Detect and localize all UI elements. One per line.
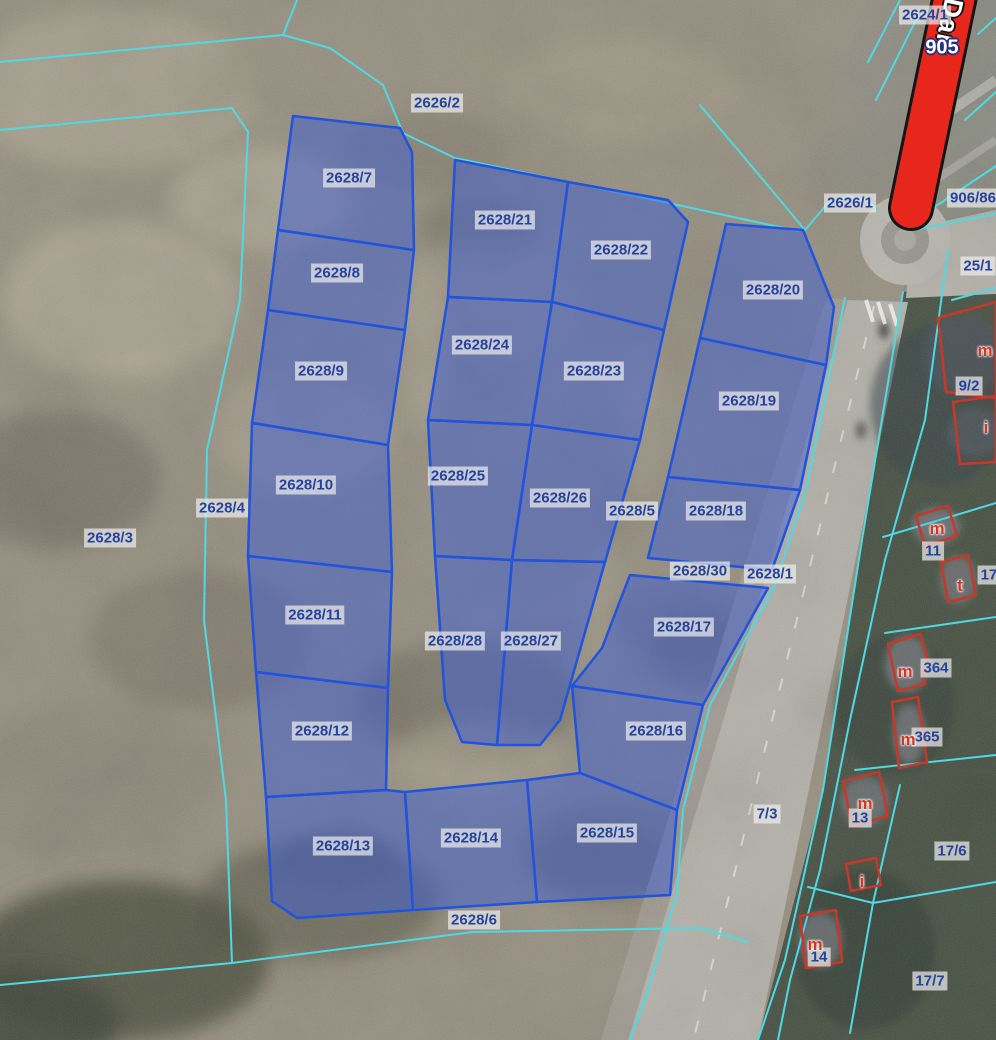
parcel-label-2628-19: 2628/19 — [719, 392, 779, 411]
parcel-label-2628-24: 2628/24 — [452, 336, 512, 355]
map-viewport: Darł9052628/72628/82628/92628/102628/112… — [0, 0, 996, 1040]
parcel-label-2628-6: 2628/6 — [448, 911, 500, 930]
parcel-label-2628-1: 2628/1 — [744, 565, 796, 584]
parcel-label-2628-23: 2628/23 — [564, 362, 624, 381]
building-use-letter: m — [900, 730, 915, 750]
parcel-label-2628-3: 2628/3 — [84, 529, 136, 548]
parcel-label-2628-14: 2628/14 — [441, 829, 501, 848]
parcel-label-17-6: 17/6 — [934, 842, 969, 861]
parcel-label-2628-17: 2628/17 — [654, 618, 714, 637]
map-labels-layer: Darł9052628/72628/82628/92628/102628/112… — [0, 0, 996, 1040]
building-use-letter: m — [857, 794, 872, 814]
parcel-label-2628-13: 2628/13 — [313, 837, 373, 856]
parcel-label-7-3: 7/3 — [754, 805, 781, 824]
parcel-label-2628-15: 2628/15 — [577, 824, 637, 843]
road-number-label: 905 — [925, 37, 958, 60]
parcel-label-2628-9: 2628/9 — [295, 362, 347, 381]
building-use-letter: m — [807, 935, 822, 955]
parcel-label-25-1: 25/1 — [960, 257, 995, 276]
parcel-label-364: 364 — [920, 659, 951, 678]
parcel-label-2628-26: 2628/26 — [530, 489, 590, 508]
parcel-label-906-86: 906/86 — [947, 189, 996, 208]
parcel-label-2628-8: 2628/8 — [311, 264, 363, 283]
parcel-label-2628-28: 2628/28 — [425, 632, 485, 651]
building-use-letter: m — [977, 341, 992, 361]
parcel-label-17-7: 17/7 — [912, 972, 947, 991]
parcel-label-2628-22: 2628/22 — [591, 241, 651, 260]
parcel-label-2628-11: 2628/11 — [285, 606, 344, 625]
building-use-letter: i — [984, 418, 989, 438]
parcel-label-2624-1: 2624/1 — [899, 6, 951, 25]
parcel-label-2628-4: 2628/4 — [196, 499, 248, 518]
parcel-label-17-: 17/ — [978, 566, 996, 585]
building-use-letter: m — [897, 662, 912, 682]
parcel-label-2628-27: 2628/27 — [501, 632, 561, 651]
parcel-label-2628-25: 2628/25 — [428, 467, 488, 486]
parcel-label-365: 365 — [911, 728, 942, 747]
building-use-letter: m — [929, 519, 944, 539]
parcel-label-2628-30: 2628/30 — [670, 562, 730, 581]
parcel-label-2628-7: 2628/7 — [323, 169, 375, 188]
parcel-label-9-2: 9/2 — [956, 377, 983, 396]
building-use-letter: t — [957, 576, 963, 596]
parcel-label-2628-18: 2628/18 — [686, 502, 746, 521]
parcel-label-2628-5: 2628/5 — [606, 502, 658, 521]
parcel-label-11: 11 — [922, 542, 944, 561]
parcel-label-2628-16: 2628/16 — [626, 722, 686, 741]
parcel-label-2626-2: 2626/2 — [411, 94, 463, 113]
parcel-label-2626-1: 2626/1 — [824, 194, 876, 213]
parcel-label-2628-10: 2628/10 — [276, 476, 336, 495]
building-use-letter: i — [860, 872, 865, 892]
parcel-label-2628-21: 2628/21 — [475, 211, 535, 230]
parcel-label-2628-12: 2628/12 — [292, 722, 352, 741]
parcel-label-2628-20: 2628/20 — [743, 281, 803, 300]
